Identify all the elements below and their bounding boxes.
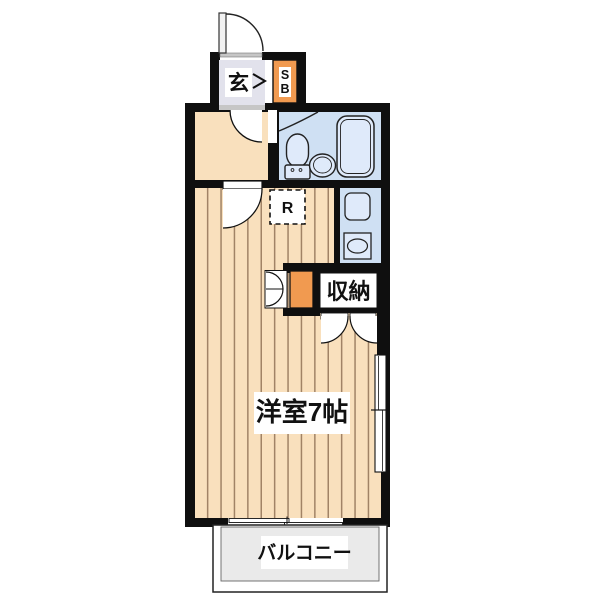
- utility-cabinet: [290, 271, 313, 308]
- main-room-label: 洋室7帖: [256, 397, 348, 427]
- toilet-icon: [287, 134, 309, 167]
- window-frame: [375, 355, 386, 472]
- closet-label: 収納: [326, 279, 370, 304]
- closet-front-wall: [320, 308, 377, 313]
- bathroom-doorway: [268, 110, 277, 143]
- shoe-box-label-s: S: [281, 68, 289, 82]
- entrance-door-leaf: [219, 13, 226, 53]
- sliding-door-sash-left: [229, 519, 289, 523]
- below-cabinet-wall: [283, 308, 320, 316]
- floor-plan: S B 玄 R 収納: [0, 0, 600, 600]
- right-wall-segment: [377, 263, 390, 355]
- toilet-tank-icon: [285, 165, 310, 179]
- room-door-leaf: [223, 181, 262, 189]
- floor-plan-svg: S B 玄 R 収納: [0, 0, 600, 600]
- genkan-step-sill: [219, 105, 265, 110]
- genkan-gap: [265, 60, 273, 103]
- shoe-box-label-b: B: [280, 82, 289, 96]
- kitchen-sink-icon: [345, 193, 370, 220]
- genkan-label: 玄: [228, 71, 249, 95]
- balcony-label: バルコニー: [257, 542, 352, 564]
- refrigerator-label: R: [282, 200, 294, 217]
- kitchen: [334, 180, 381, 265]
- bathroom: [270, 103, 390, 188]
- bathtub-icon: [337, 116, 374, 177]
- balcony: バルコニー: [213, 525, 387, 592]
